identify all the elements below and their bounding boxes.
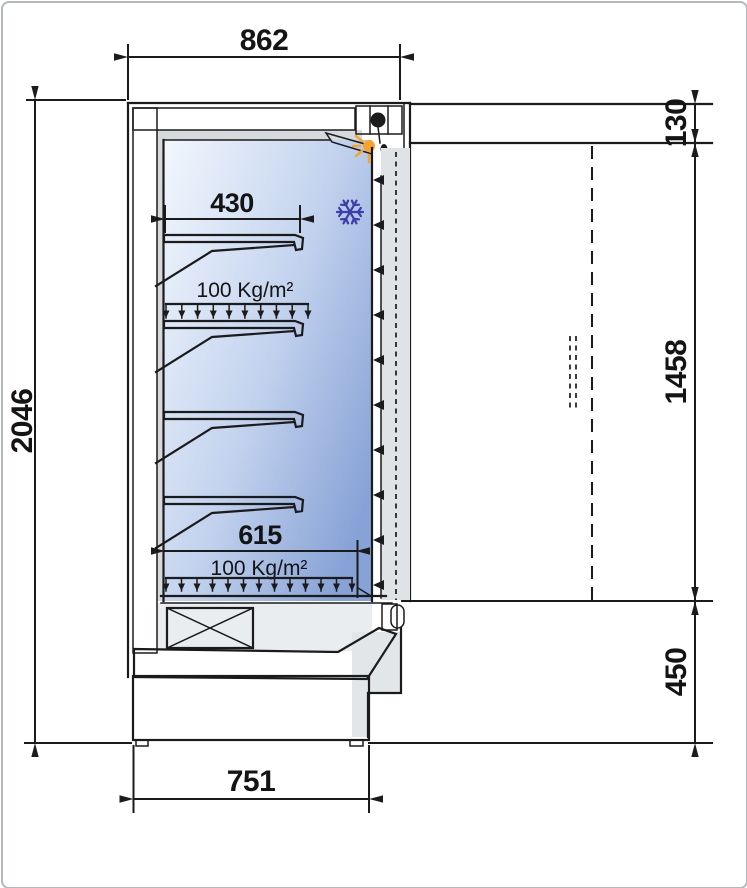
light-stem (378, 127, 380, 143)
lamp-bulb (363, 140, 375, 152)
dim-text-shelf-depth: 430 (210, 188, 254, 218)
deck-load-label: 100 Kg/m² (211, 557, 308, 580)
shelf-load-label: 100 Kg/m² (197, 279, 294, 302)
cabinet-cross-section-drawing: 862 2046 130 1458 450 751 430 (0, 0, 747, 888)
dimension-overall-width: 862 (128, 24, 400, 99)
dimension-base-depth: 751 (134, 746, 370, 812)
top-wall-insulation (133, 108, 355, 130)
front-base-panel (352, 632, 401, 737)
dimension-opening-height: 1458 (402, 143, 712, 601)
dimension-base-height: 450 (369, 601, 712, 743)
cabinet-body (128, 103, 592, 746)
dim-text-deck-depth: 615 (238, 520, 282, 550)
light-tube-icon (371, 113, 386, 128)
dim-text-overall-width: 862 (240, 24, 289, 57)
technical-drawing-page: 862 2046 130 1458 450 751 430 (0, 0, 747, 888)
dimension-overall-height: 2046 (6, 100, 131, 743)
dim-text-base-depth: 751 (227, 765, 276, 798)
front-sill-insulation (382, 604, 397, 630)
dim-text-overall-height: 2046 (6, 389, 39, 454)
machine-compartment (157, 603, 372, 651)
dimension-canopy-height: 130 (410, 99, 712, 148)
front-opening (372, 148, 410, 601)
back-wall-insulation (133, 108, 157, 653)
dim-text-opening-height: 1458 (660, 340, 693, 405)
dim-text-base-height: 450 (660, 648, 693, 697)
dim-text-canopy-height: 130 (660, 99, 693, 148)
door-handle-hidden (570, 336, 576, 412)
base-plinth (133, 676, 369, 740)
